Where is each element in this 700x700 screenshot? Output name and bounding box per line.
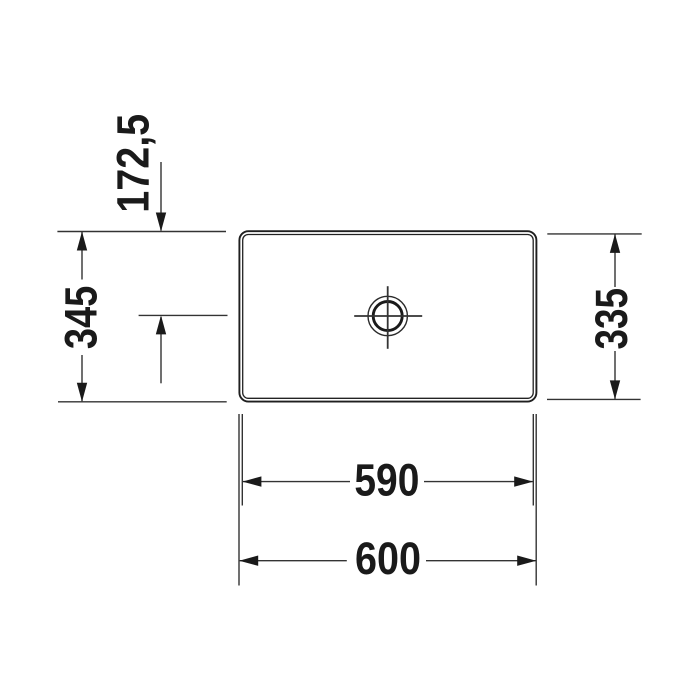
- svg-text:345: 345: [56, 286, 107, 350]
- svg-text:590: 590: [354, 454, 419, 505]
- svg-text:335: 335: [586, 288, 637, 350]
- svg-text:172,5: 172,5: [108, 114, 159, 213]
- svg-text:600: 600: [355, 533, 421, 584]
